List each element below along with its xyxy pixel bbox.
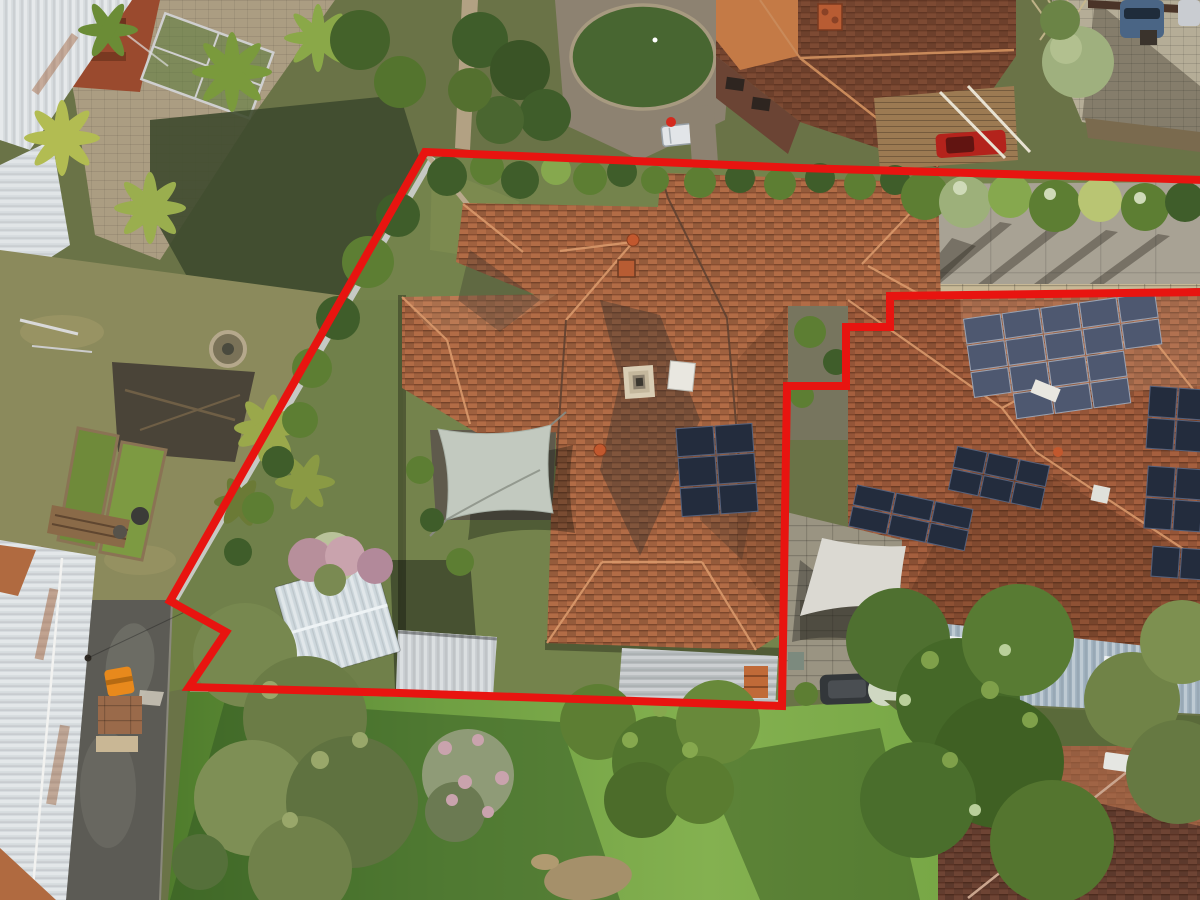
aerial-photo <box>0 0 1200 900</box>
drum2 <box>113 525 127 539</box>
roof-vent-dome2 <box>594 444 606 456</box>
pallet <box>96 736 138 752</box>
solar-array-east3 <box>1151 546 1200 580</box>
hedge-small <box>1040 0 1080 40</box>
fountain-center <box>222 343 234 355</box>
lawn-object <box>653 38 658 43</box>
roof-vent-dome <box>627 234 639 246</box>
white-roof-hatch <box>668 361 696 391</box>
red-car <box>935 130 1007 159</box>
roadside-tree <box>172 834 228 890</box>
side-path <box>688 105 718 165</box>
window <box>725 77 744 91</box>
dirt-patch2 <box>531 854 559 870</box>
blue-car-windshield <box>1124 8 1160 19</box>
orange-equipment <box>104 666 135 697</box>
chimney-pot2 <box>832 17 839 24</box>
chimney-main <box>618 260 635 277</box>
silver-car <box>1178 0 1200 26</box>
garage-ribs <box>396 630 497 697</box>
chimney <box>818 4 842 30</box>
circular-lawn <box>571 5 715 109</box>
brick-stack-lines <box>98 696 142 734</box>
green-bush <box>794 682 818 706</box>
chimney-pot <box>822 9 829 16</box>
person-in-red <box>666 117 676 127</box>
ac-unit-box <box>788 652 804 670</box>
drum <box>131 507 149 525</box>
dry-grass-patch <box>20 315 104 349</box>
drain-grate <box>1140 30 1157 45</box>
scene-svg <box>0 0 1200 900</box>
window2 <box>751 97 770 111</box>
skylight <box>623 365 655 399</box>
right-vent-dome <box>1053 447 1063 457</box>
